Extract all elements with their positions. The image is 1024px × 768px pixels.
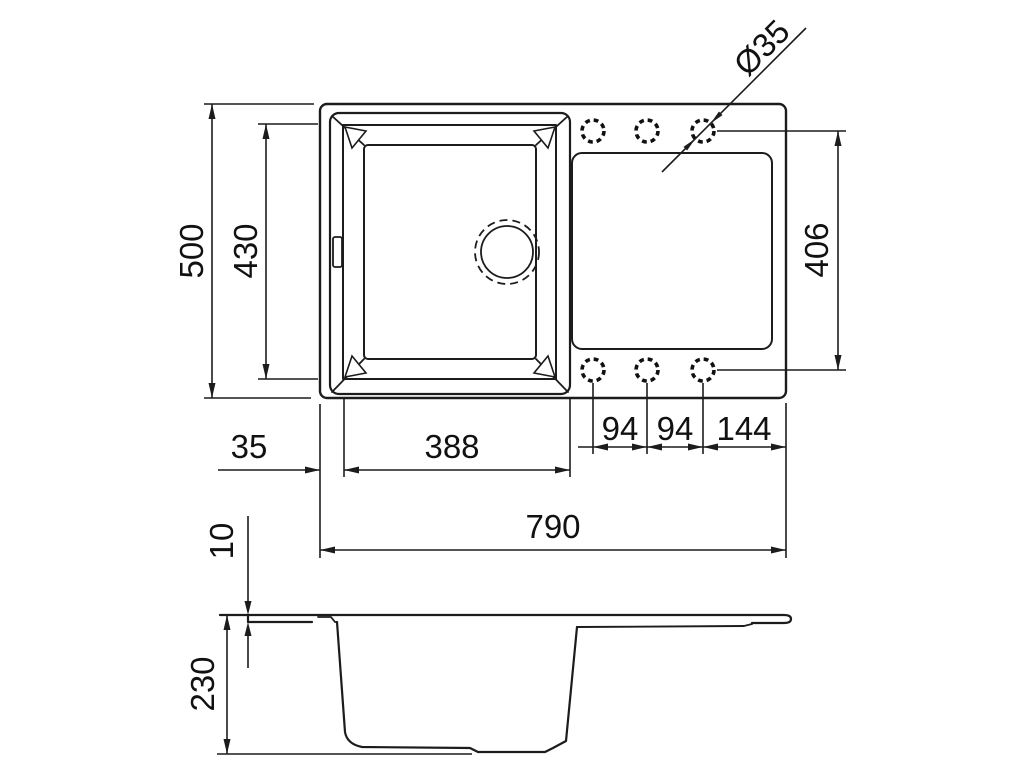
dim-bowl-depth: 430 xyxy=(227,124,318,379)
tap-hole-bottom-2 xyxy=(636,359,658,381)
dim-label-hole-rows-span: 406 xyxy=(798,222,835,277)
dim-label-bowl-depth: 430 xyxy=(227,223,264,278)
dim-label-edge-to-bowl: 35 xyxy=(231,428,268,465)
dim-label-hole-spacing-1: 94 xyxy=(602,410,639,447)
side-view: 10 230 xyxy=(184,516,791,754)
tap-holes xyxy=(582,120,714,381)
drainboard-outline xyxy=(572,153,772,349)
dim-label-tap-hole-diameter: Ø35 xyxy=(726,12,796,82)
drain-inner-circle xyxy=(481,226,533,278)
dim-label-bowl-width: 388 xyxy=(424,428,479,465)
drain-outer-circle xyxy=(475,220,539,284)
side-drainboard-surface xyxy=(577,624,752,627)
tap-hole-bottom-1 xyxy=(582,359,604,381)
dim-label-bowl-height: 230 xyxy=(184,656,221,711)
bowl-floor-outline xyxy=(364,145,536,359)
plan-view: Ø35 500 430 406 xyxy=(173,12,846,558)
technical-drawing-canvas: Ø35 500 430 406 xyxy=(0,0,1024,768)
dim-label-rim-thickness: 10 xyxy=(203,523,240,560)
side-rim-notch xyxy=(318,617,337,622)
dim-hole-rows-span: 406 xyxy=(717,131,846,370)
dim-overall-width: 790 xyxy=(320,508,786,554)
dim-tap-hole-diameter: Ø35 xyxy=(662,12,806,172)
dim-edge-and-bowl-width: 35 388 xyxy=(218,397,570,558)
overflow-slot xyxy=(333,237,342,267)
side-bowl-profile xyxy=(337,622,577,752)
sink-drawing-svg: Ø35 500 430 406 xyxy=(0,0,1024,768)
dim-label-overall-width: 790 xyxy=(525,508,580,545)
tap-hole-bottom-3 xyxy=(692,359,714,381)
sink-outline xyxy=(320,104,786,398)
dim-label-hole-to-edge: 144 xyxy=(716,410,771,447)
dim-label-hole-spacing-2: 94 xyxy=(657,410,694,447)
tap-hole-top-1 xyxy=(582,120,604,142)
dim-label-overall-depth: 500 xyxy=(173,223,210,278)
bowl-rim-outline xyxy=(330,113,570,394)
tap-hole-top-2 xyxy=(636,120,658,142)
dim-bowl-height: 230 xyxy=(184,615,472,754)
bowl-opening-outline xyxy=(343,125,556,379)
dim-hole-spacing-chain: 94 94 144 xyxy=(578,383,786,558)
